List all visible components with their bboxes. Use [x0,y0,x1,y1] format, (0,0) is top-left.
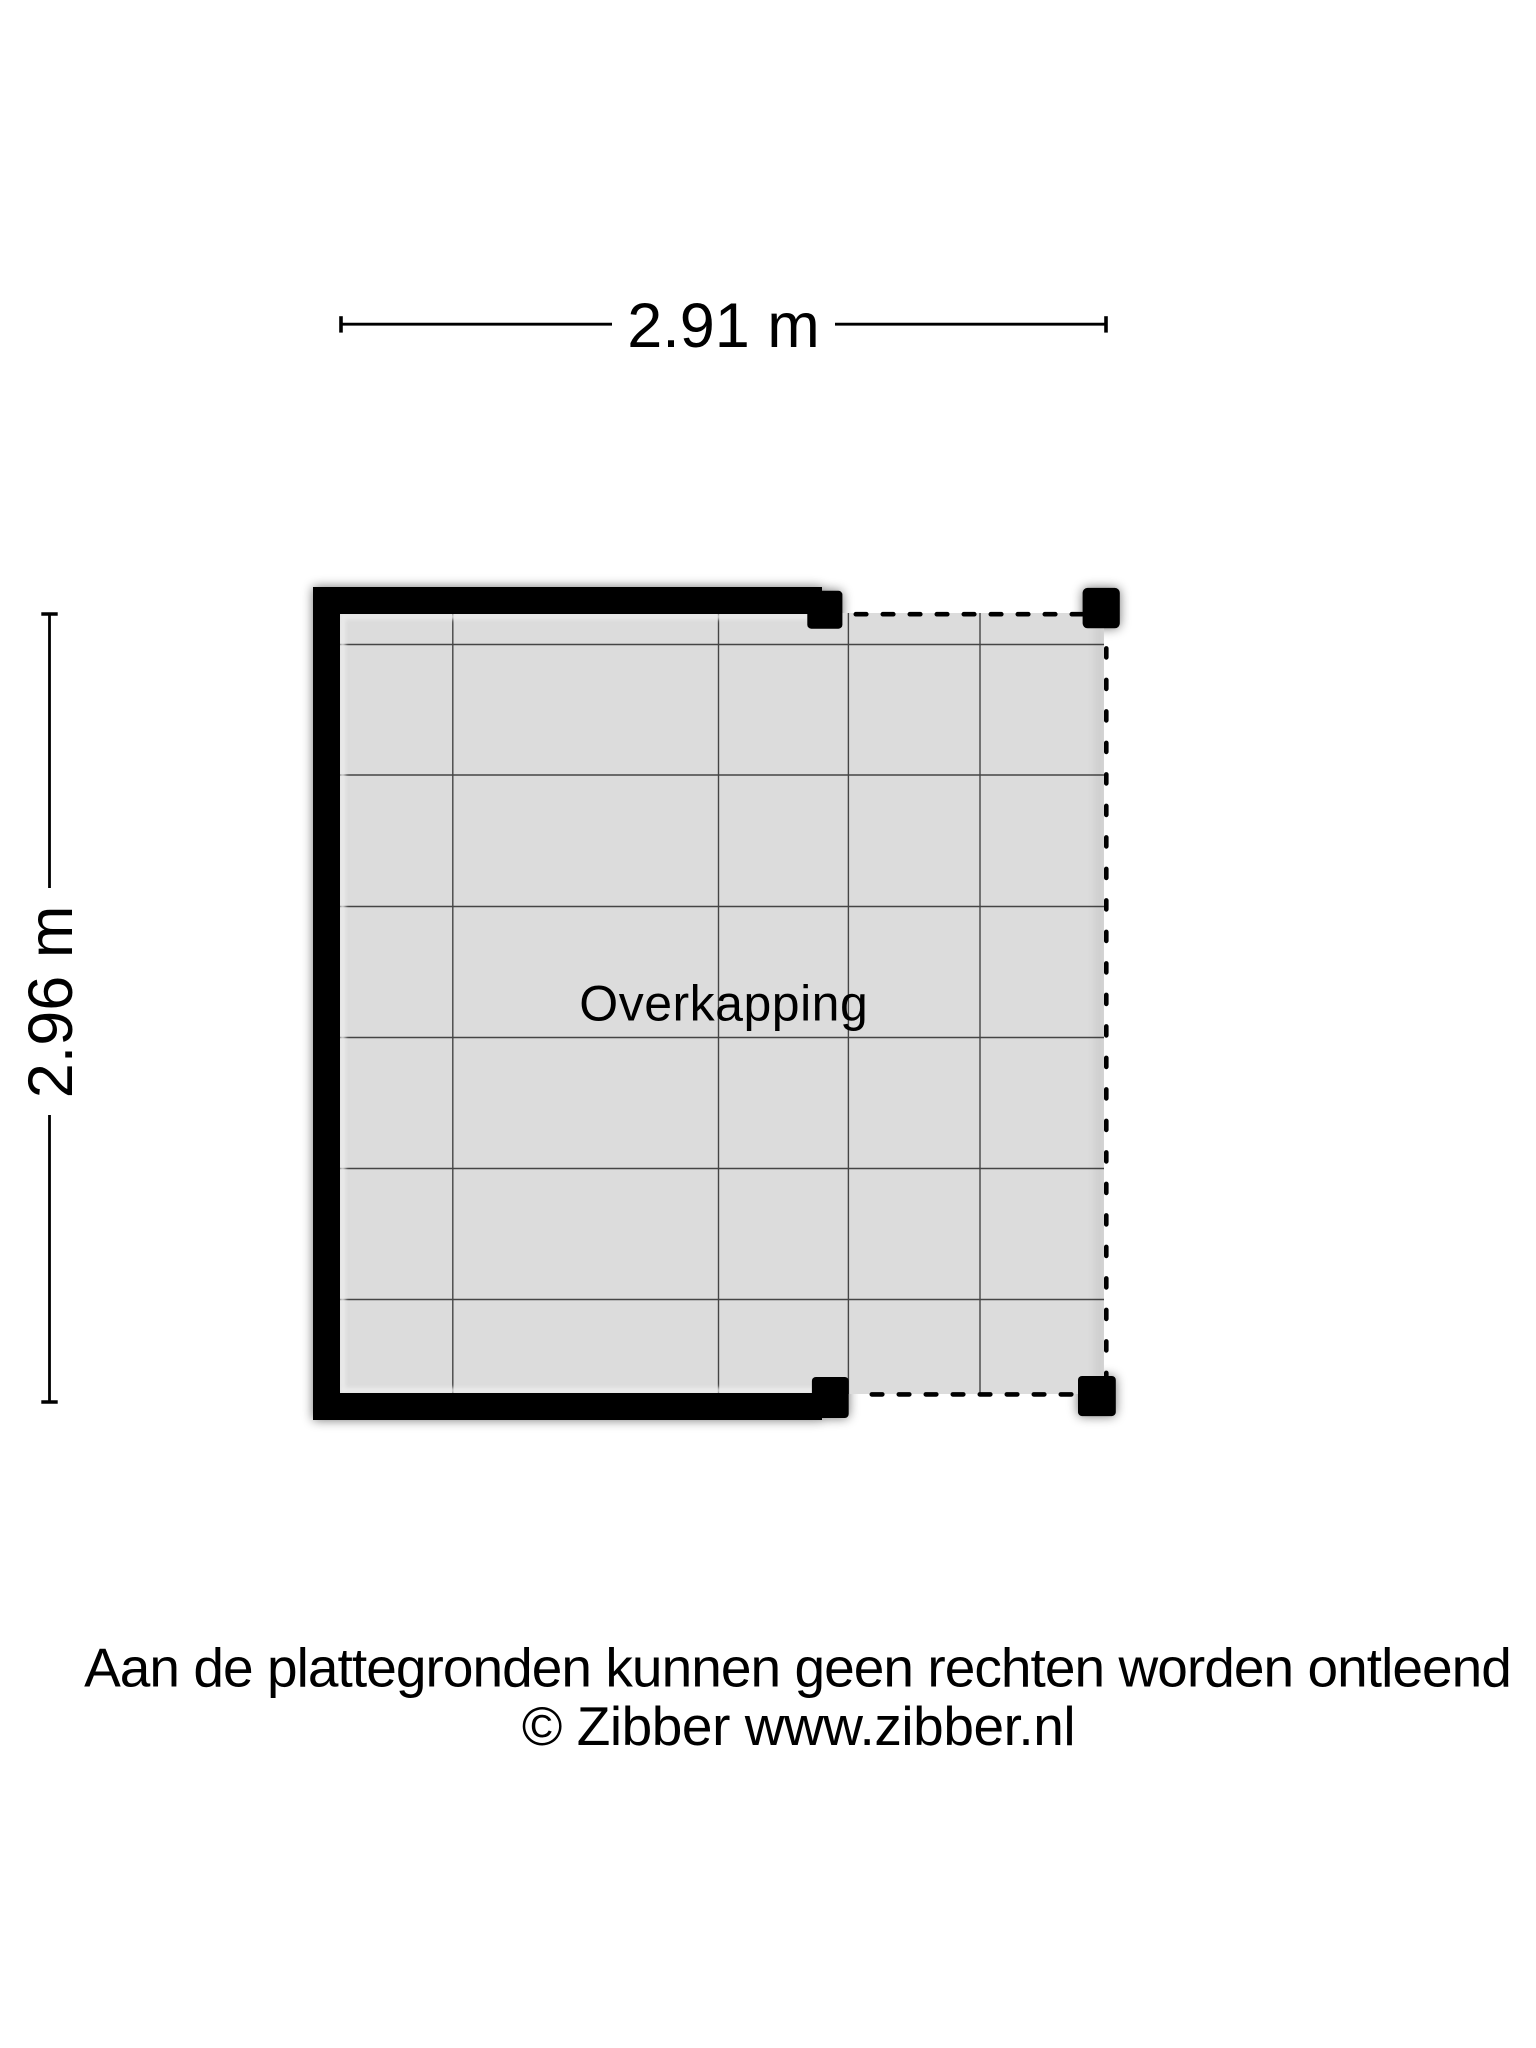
svg-text:2.91 m: 2.91 m [627,291,820,361]
svg-text:Aan de plattegronden kunnen ge: Aan de plattegronden kunnen geen rechten… [84,1637,1511,1699]
svg-text:2.96 m: 2.96 m [16,906,86,1099]
svg-text:Overkapping: Overkapping [579,976,868,1032]
svg-text:© Zibber www.zibber.nl: © Zibber www.zibber.nl [522,1695,1075,1757]
